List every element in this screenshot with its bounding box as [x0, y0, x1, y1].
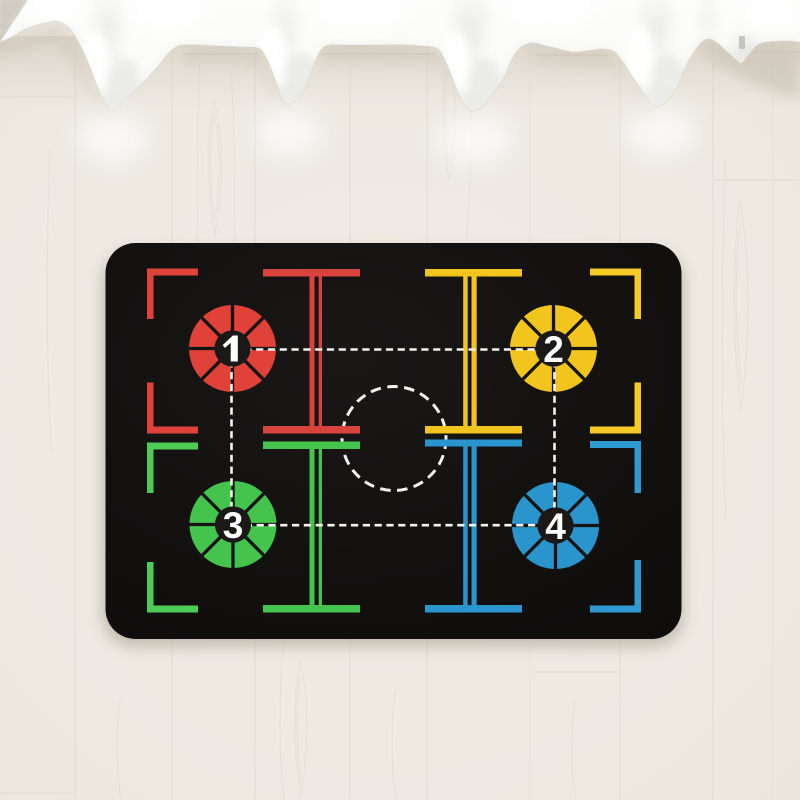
svg-text:3: 3: [223, 505, 244, 546]
svg-text:4: 4: [545, 506, 566, 547]
svg-text:2: 2: [543, 329, 564, 370]
